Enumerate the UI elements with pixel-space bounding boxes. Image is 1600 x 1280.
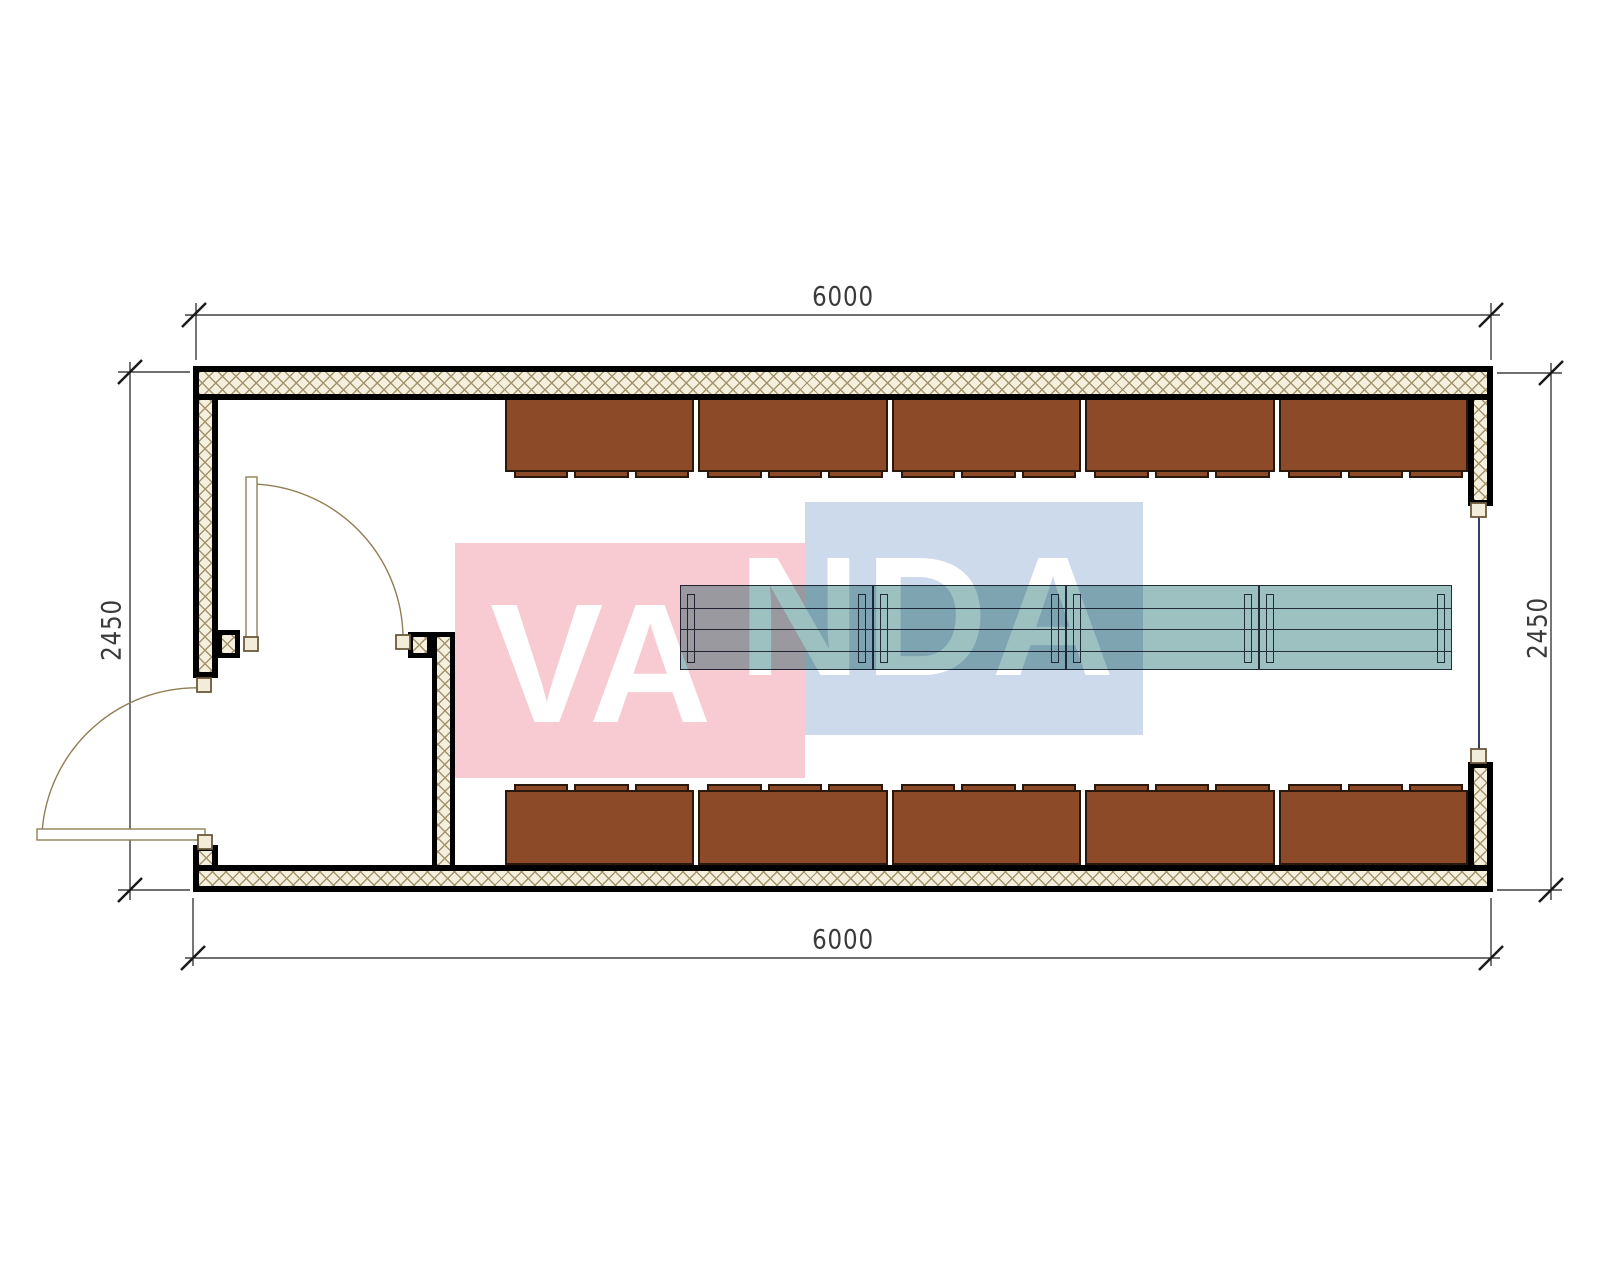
dimension-label-bottom: 6000 [812, 925, 874, 956]
interior-door [246, 477, 403, 649]
interior-door-swing-arc [251, 484, 403, 641]
dimension-label-right: 2450 [1523, 597, 1554, 659]
jamb-squares [197, 503, 1486, 849]
floor-plan-canvas: VA NDA [0, 0, 1600, 1280]
dimension-ticks [118, 303, 1563, 970]
dimension-and-opening-overlay [0, 0, 1600, 1280]
dimension-label-left: 2450 [97, 599, 128, 661]
exterior-door-swing-arc [42, 688, 205, 833]
interior-door-leaf [246, 477, 257, 649]
dimension-label-top: 6000 [812, 282, 874, 313]
exterior-door-leaf [37, 829, 205, 840]
exterior-door [37, 688, 205, 840]
dimension-lines [118, 303, 1562, 966]
